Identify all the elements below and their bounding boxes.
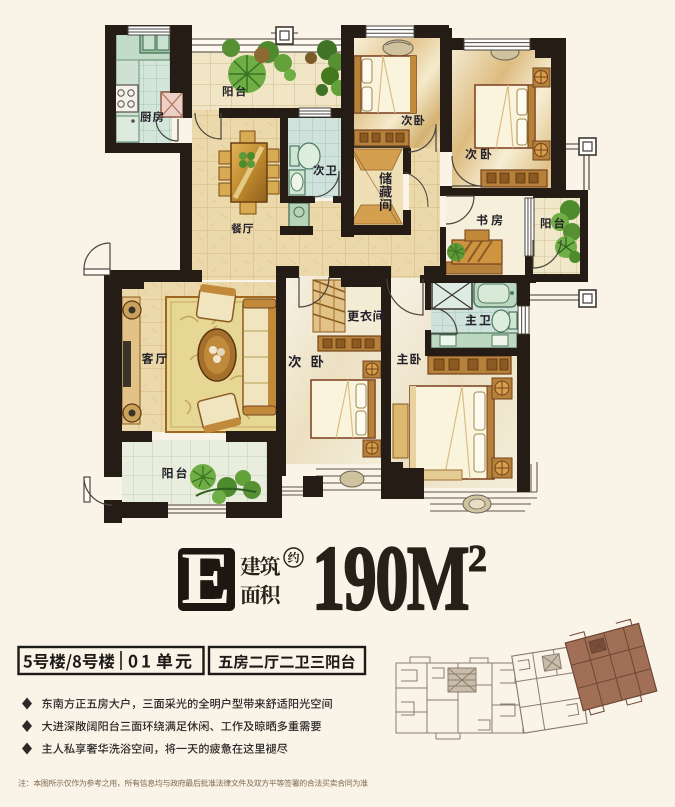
svg-text:190M: 190M xyxy=(312,529,468,630)
svg-text:E: E xyxy=(181,538,230,620)
svg-text:2: 2 xyxy=(468,538,487,580)
